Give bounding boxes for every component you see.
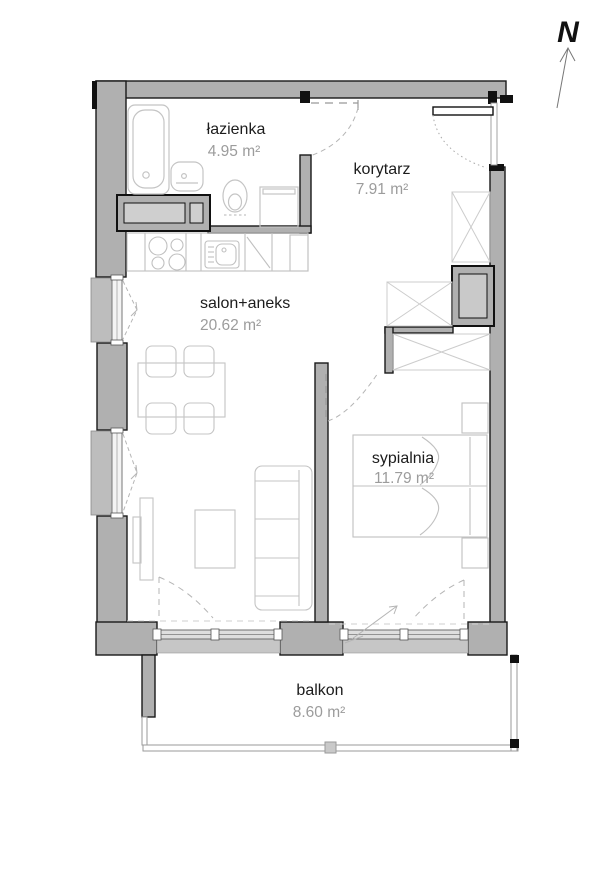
room-name-sypialnia: sypialnia [372,450,434,467]
corridor-wardrobe-right [452,192,490,262]
nightstand-top [462,403,488,433]
balcony-wall-stub [142,655,155,717]
room-area-balkon: 8.60 m² [293,704,346,721]
wall-bedroom-north [385,327,453,333]
room-area-lazienka: 4.95 m² [208,143,261,160]
dining-set [138,346,225,434]
tall-cabinet [290,235,308,271]
cap-entry-jamb [488,91,497,104]
railing-left [142,717,147,745]
cap-top-left [92,81,97,109]
bedroom-door [326,373,378,422]
window-salon-upper [91,275,137,345]
window-salon-lower [91,428,137,518]
wall-bottom-right-corner [468,622,507,655]
room-area-korytarz: 7.91 m² [356,181,409,198]
cap-top-right-step [500,95,513,103]
shaft-kitchen-inner-small [190,203,203,223]
entrance-door [433,107,493,168]
floorplan-page: N łazienka 4.95 m² korytarz 7.91 m² salo… [0,0,600,872]
dining-table [138,363,225,417]
salon-balcony-door [159,577,213,619]
room-name-salon: salon+aneks [200,295,290,312]
room-name-lazienka: łazienka [207,121,266,138]
room-name-balkon: balkon [296,682,343,699]
nightstand-bottom [462,538,488,568]
corridor-wardrobe-left [387,282,452,326]
wall-bottom-left-corner [96,622,157,655]
bathroom-sink [171,162,203,191]
interior-walls [208,155,453,622]
room-area-salon: 20.62 m² [200,317,261,334]
floorplan-drawing: N łazienka 4.95 m² korytarz 7.91 m² salo… [0,0,600,872]
railing-right [511,655,517,751]
kitchen-sink [205,241,239,268]
salon-furniture [133,466,312,610]
shaft-bedroom-inner [459,274,487,318]
wall-bottom-middle [280,622,343,655]
bathroom-door [310,100,358,156]
railing-post-mid [325,742,336,753]
bathtub [128,105,169,194]
chair [184,346,214,377]
room-name-korytarz: korytarz [354,161,411,178]
wall-right [490,167,505,623]
sofa [255,466,312,610]
corner-cabinet-diagonal [247,237,270,268]
kitchen-counter [127,233,308,271]
north-label: N [557,16,580,49]
railing-post-top-right [510,655,519,663]
chair [184,403,214,434]
railing-post-bottom-right [510,739,519,748]
stove [149,237,185,270]
wall-bedroom-door-jamb [385,327,393,373]
bedroom-wardrobe [393,334,490,370]
toilet [223,180,247,215]
cap-bath-door-jamb [300,91,310,103]
washing-machine [260,187,298,227]
north-arrow: N [557,16,580,108]
chair [146,403,176,434]
shaft-kitchen-inner-large [124,203,185,223]
wall-left-mid [97,343,127,430]
wall-bathroom-east [300,155,311,233]
chair [146,346,176,377]
wall-left-upper [96,81,126,277]
coffee-table [195,510,235,568]
wall-left-lower [97,516,127,623]
tv-stand [133,498,153,580]
room-area-sypialnia: 11.79 m² [374,470,434,487]
